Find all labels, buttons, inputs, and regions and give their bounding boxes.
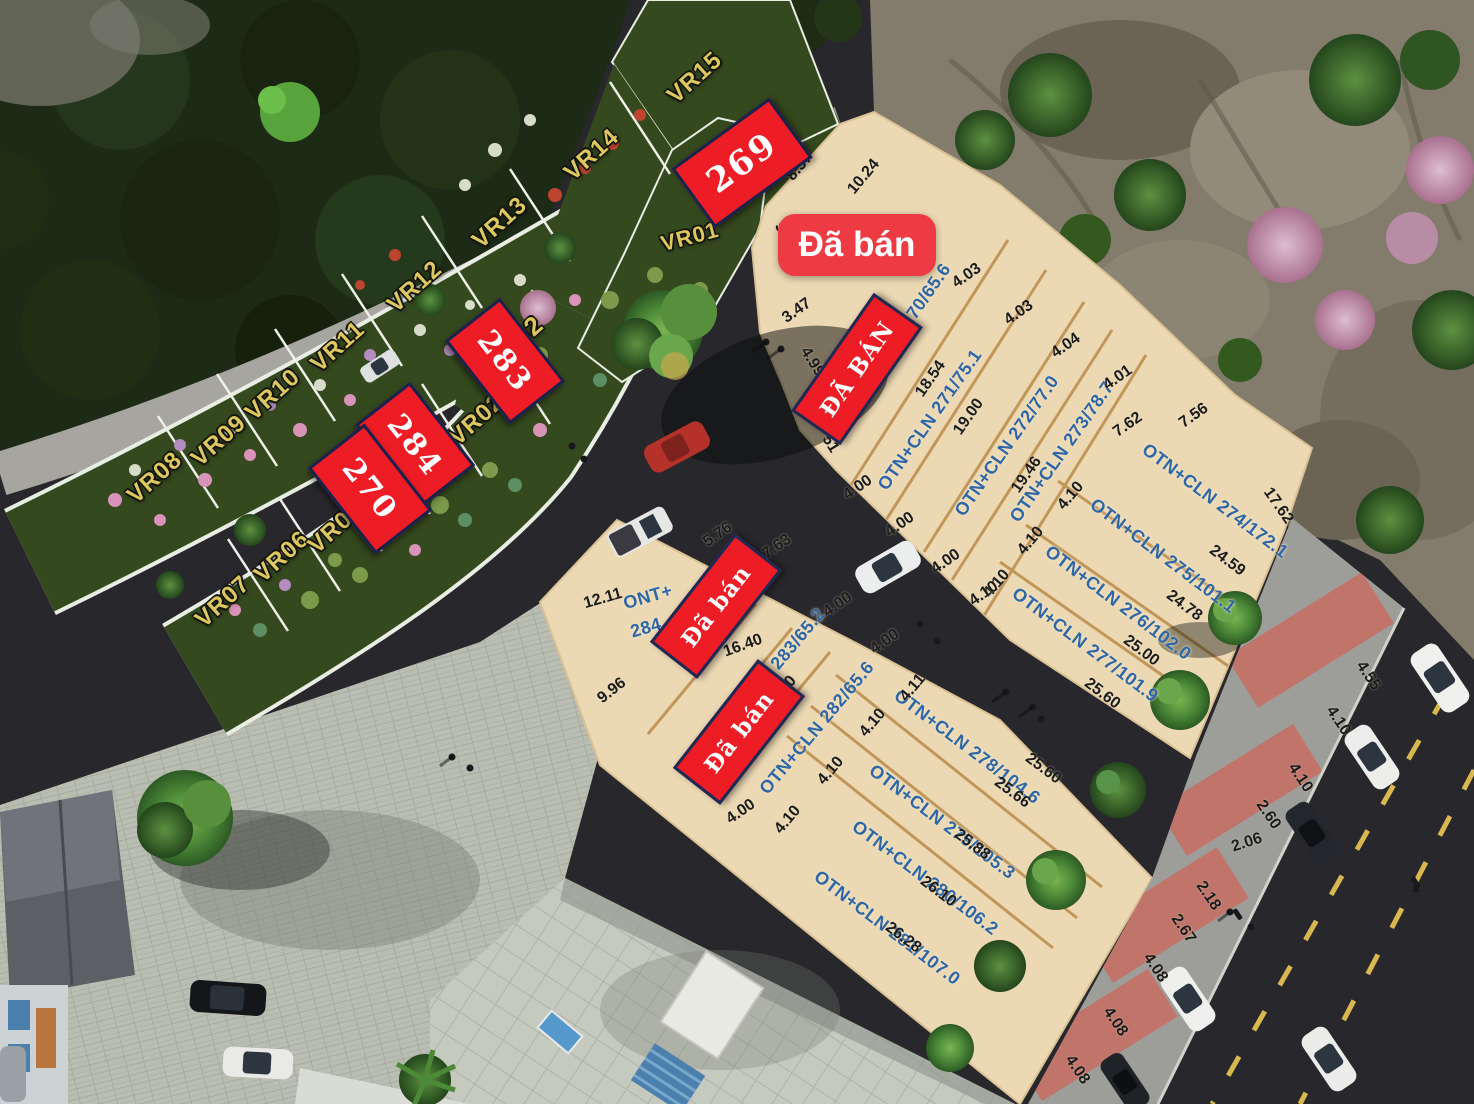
sold-lot-plate-283: 283 <box>445 298 565 425</box>
dimension-4-08: 4.08 <box>1139 950 1171 986</box>
dimension-4-00: 4.00 <box>867 626 903 659</box>
garden-plot-label-vr09: VR09 <box>186 409 252 473</box>
dimension-24-59: 24.59 <box>1206 542 1249 580</box>
dimension-4-10: 4.10 <box>814 753 848 788</box>
plot-label-283-65-2: 283/65.2 <box>766 604 829 674</box>
plot-label-otn-cln-272-77-0: OTN+CLN 272/77.0 <box>951 372 1064 521</box>
dimension-4-55: 4.55 <box>1352 658 1384 694</box>
dimension-4-10: 4.10 <box>771 802 805 837</box>
dimension-3-47: 3.47 <box>779 295 815 328</box>
dimension-2-06: 2.06 <box>1229 830 1264 857</box>
dimension-4-10: 4.10 <box>1284 760 1316 796</box>
garden-plot-label-vr12: VR12 <box>382 255 448 319</box>
dimension-19-00: 19.00 <box>950 395 988 438</box>
label-layer: OTN+CLN 270/65.6OTN+CLN 271/75.1OTN+CLN … <box>0 0 1474 1104</box>
sold-badge: Đã bán <box>778 214 936 276</box>
garden-plot-label-vr06: VR06 <box>249 525 315 589</box>
garden-plot-label-vr10: VR10 <box>240 363 306 427</box>
dimension-4-10: 4.10 <box>856 705 890 740</box>
sold-lot-plate-269: 269 <box>671 98 812 229</box>
dimension-9-96: 9.96 <box>594 674 630 707</box>
garden-plot-label-vr08: VR08 <box>122 446 188 510</box>
dimension-4-08: 4.08 <box>1061 1052 1093 1088</box>
dimension-4-00: 4.00 <box>928 546 964 579</box>
garden-plot-label-vr07: VR07 <box>190 570 256 634</box>
garden-plot-label-vr14: VR14 <box>559 123 625 187</box>
dimension-7-62: 7.62 <box>1110 409 1146 442</box>
dimension-4-10: 4.10 <box>1322 703 1354 739</box>
dimension-4-00: 4.00 <box>840 472 876 505</box>
dimension-17-62: 17.62 <box>1259 484 1297 527</box>
garden-plot-label-vr13: VR13 <box>467 191 533 255</box>
sold-plate: Đã bán <box>650 533 782 679</box>
dimension-2-67: 2.67 <box>1167 911 1199 947</box>
garden-plot-label-vr11: VR11 <box>305 316 370 379</box>
dimension-2-60: 2.60 <box>1252 797 1284 833</box>
dimension-12-11: 12.11 <box>582 585 625 613</box>
dimension-2-18: 2.18 <box>1192 878 1224 914</box>
dimension-10-24: 10.24 <box>844 156 884 198</box>
plot-label-ont-: ONT+ <box>621 580 675 614</box>
dimension-4-03: 4.03 <box>1001 297 1037 330</box>
dimension-4-03: 4.03 <box>949 260 985 293</box>
dimension-7-56: 7.56 <box>1176 400 1212 433</box>
site-plan-canvas: OTN+CLN 270/65.6OTN+CLN 271/75.1OTN+CLN … <box>0 0 1474 1104</box>
dimension-4-08: 4.08 <box>1099 1004 1131 1040</box>
garden-plot-label-vr15: VR15 <box>662 46 728 110</box>
dimension-4-04: 4.04 <box>1048 330 1084 363</box>
dimension-4-10: 4.10 <box>1054 478 1088 513</box>
dimension-4-00: 4.00 <box>723 796 759 829</box>
dimension-4-00: 4.00 <box>882 509 918 542</box>
sold-plate: Đã bán <box>673 659 805 805</box>
